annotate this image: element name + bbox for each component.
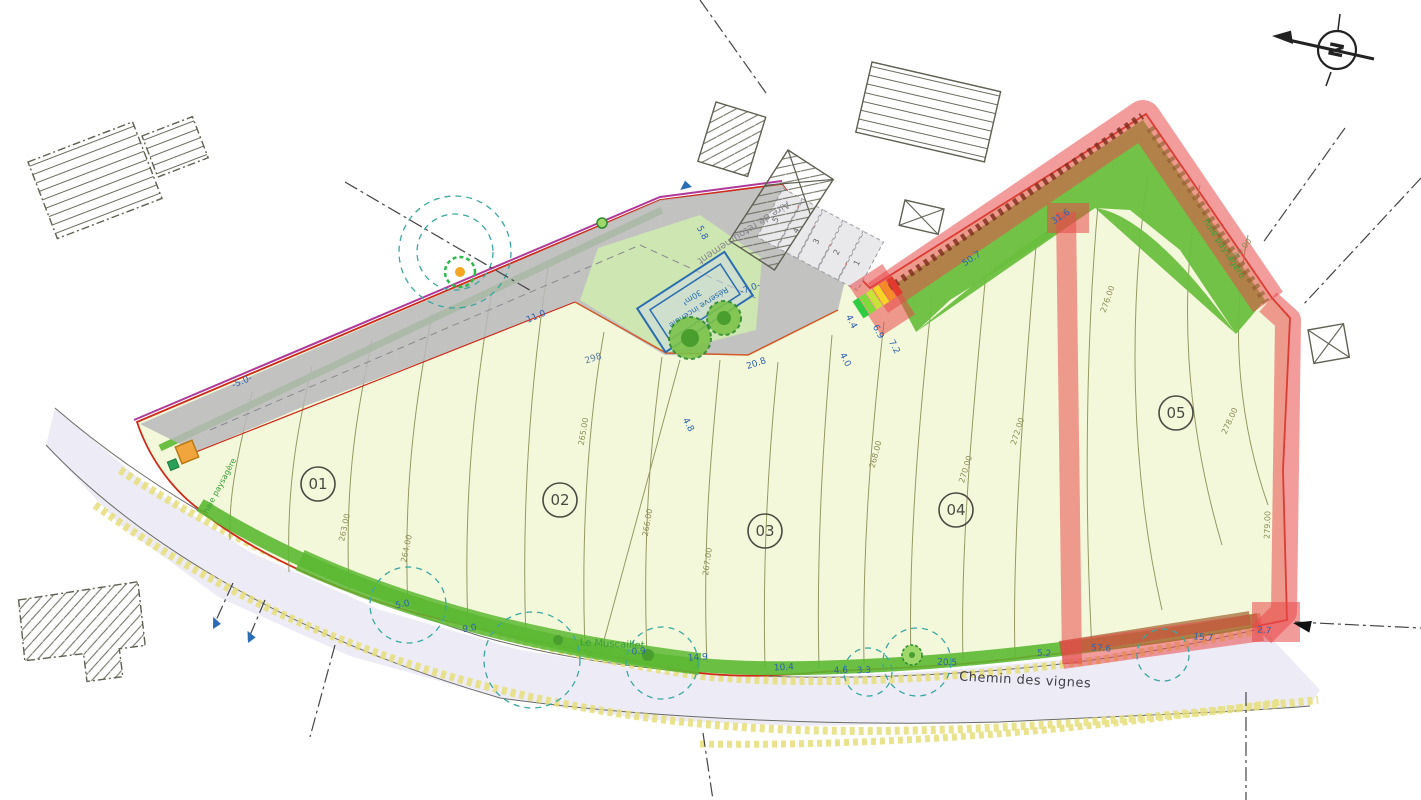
survey-arrow bbox=[208, 617, 222, 631]
lot-number: 01 bbox=[308, 475, 327, 493]
north-arrow-head bbox=[1271, 28, 1295, 44]
dimension-label: 20.5 bbox=[937, 658, 957, 669]
survey-arrow bbox=[243, 631, 256, 645]
lot-number: 05 bbox=[1166, 404, 1185, 422]
dimension-label: 4.6 bbox=[834, 666, 849, 677]
building-hatched bbox=[142, 117, 208, 177]
cadastral-line bbox=[310, 645, 335, 737]
red-cap-corner-se bbox=[1252, 602, 1300, 642]
tree-symbol bbox=[553, 635, 563, 645]
site-plan-svg: 5 4 3 2 1 bbox=[0, 0, 1421, 800]
dimension-label: 3.3 bbox=[857, 666, 872, 676]
tree-symbol bbox=[707, 301, 741, 335]
building-hatched bbox=[856, 62, 1001, 162]
tree-symbol bbox=[902, 645, 922, 665]
cadastral-line bbox=[1295, 622, 1421, 628]
lot-number: 04 bbox=[946, 501, 965, 519]
cadastral-line bbox=[700, 0, 766, 93]
contour-label: 279.00 bbox=[1263, 511, 1273, 539]
dimension-label: 57.6 bbox=[1091, 643, 1112, 654]
red-band-divider bbox=[1066, 212, 1072, 664]
dimension-label: 5.2 bbox=[1037, 649, 1052, 660]
survey-arrow bbox=[680, 180, 693, 192]
lot-number: 03 bbox=[755, 522, 774, 540]
dimension-label: 14.9 bbox=[688, 652, 709, 663]
building-crossed bbox=[1308, 324, 1349, 364]
lot-number: 02 bbox=[550, 491, 569, 509]
cadastral-line bbox=[1302, 178, 1421, 306]
building-hatched bbox=[18, 582, 147, 685]
dimension-label: 10.4 bbox=[774, 662, 795, 673]
tree-symbol bbox=[669, 317, 711, 359]
building-hatched bbox=[28, 122, 162, 239]
site-plan: 5 4 3 2 1 bbox=[0, 0, 1421, 800]
north-arrow: N bbox=[1271, 14, 1374, 86]
building-crossed bbox=[899, 200, 944, 234]
tree-symbol bbox=[597, 218, 607, 228]
dimension-label: 15.7 bbox=[1193, 632, 1214, 644]
north-label: N bbox=[1325, 40, 1350, 60]
cadastral-line bbox=[1262, 128, 1345, 244]
dimension-label: 2.7 bbox=[1257, 625, 1272, 636]
building-hatched bbox=[698, 102, 766, 176]
